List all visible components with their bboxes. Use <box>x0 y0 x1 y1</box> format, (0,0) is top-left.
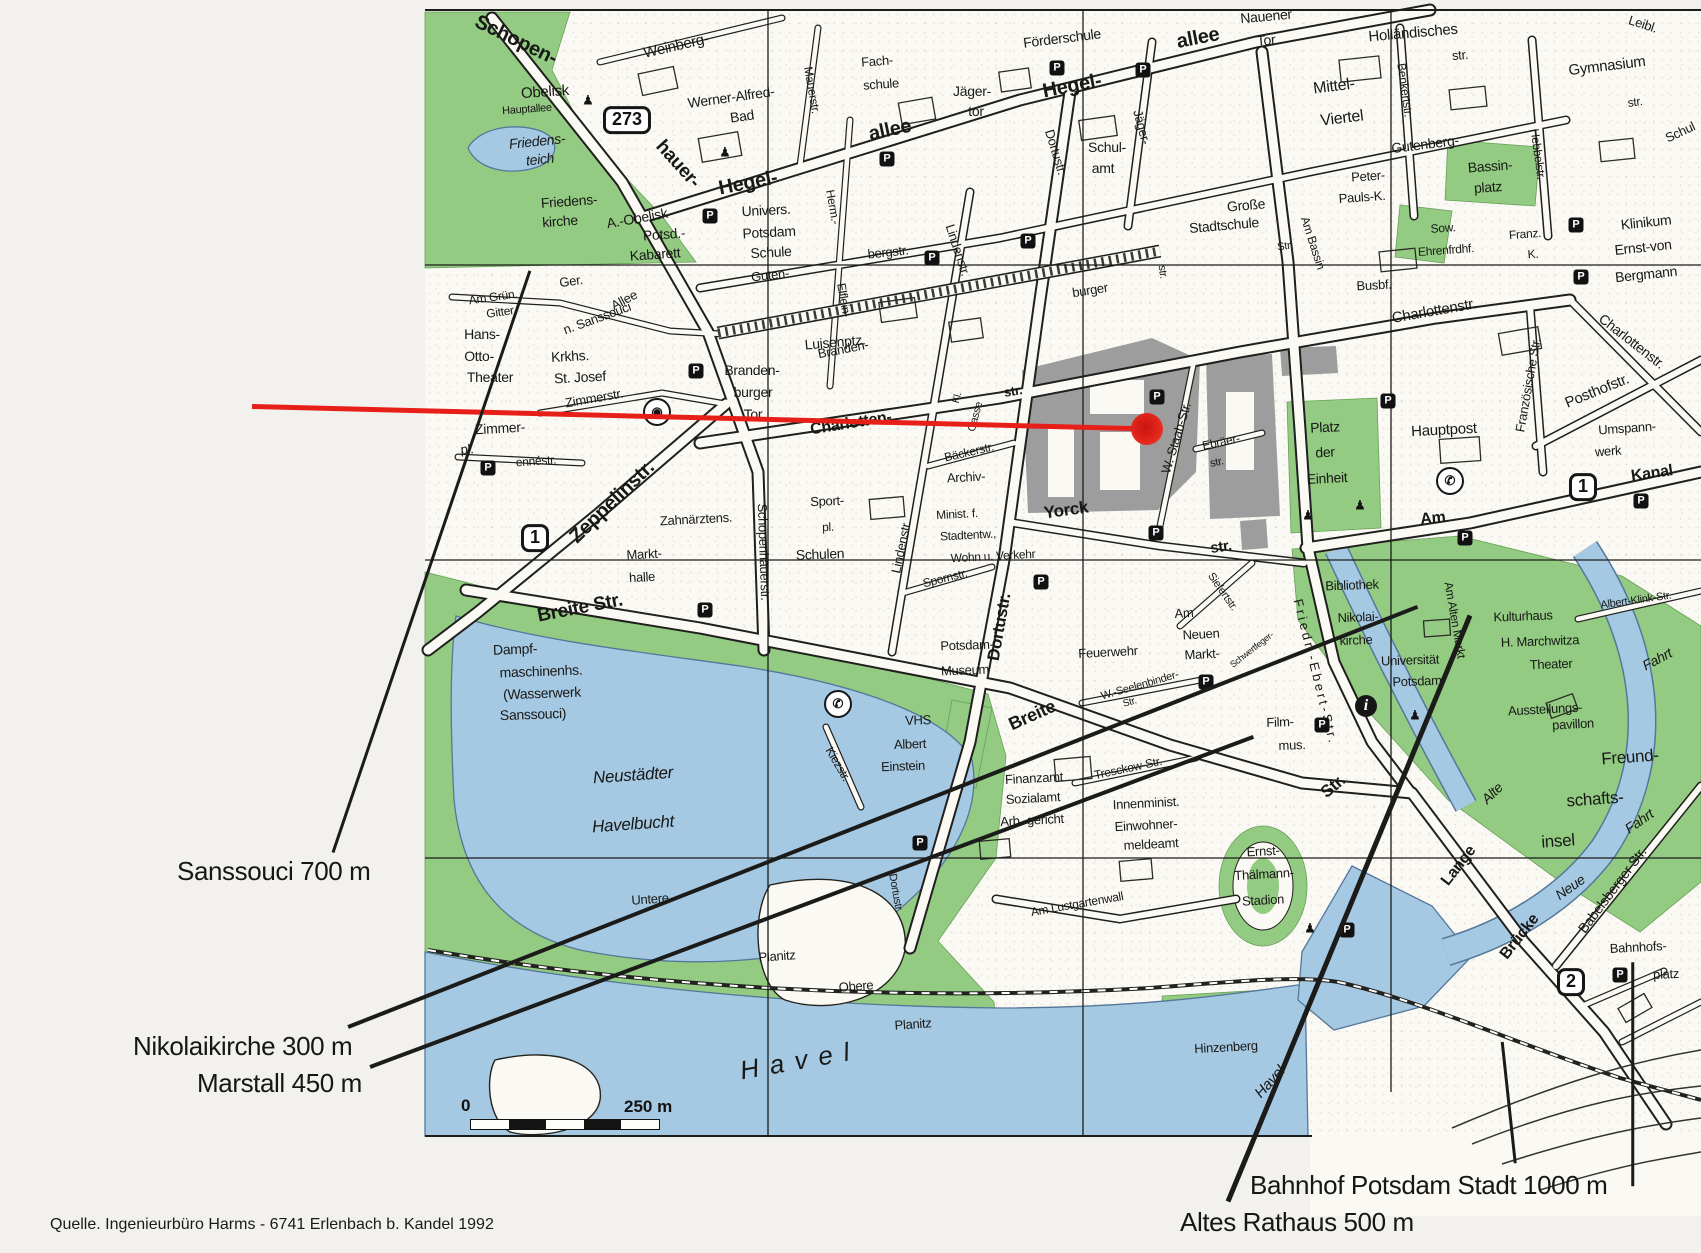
map-label: Feuerwehr <box>1078 644 1138 660</box>
map-label: Archiv- <box>947 470 986 485</box>
map-label: Pauls-K. <box>1338 189 1386 205</box>
map-label: schafts- <box>1566 789 1624 810</box>
poi-circle-icon: ✆ <box>1436 467 1464 495</box>
parking-icon: P <box>1458 531 1473 546</box>
marker-red-dot <box>1131 413 1163 445</box>
map-label: Potsdam <box>1392 674 1442 689</box>
map-label: Guten- <box>750 267 789 284</box>
map-label: Schulen <box>796 546 845 562</box>
map-label: Innenminist. <box>1112 795 1179 811</box>
parking-icon: P <box>1136 63 1151 78</box>
map-label: Dampf- <box>493 641 538 657</box>
map-label: platz <box>1653 967 1680 981</box>
map-label: Fach- <box>861 53 894 68</box>
map-label: Einwohner- <box>1114 817 1177 833</box>
annotation-nikolaikirche: Nikolaikirche 300 m <box>133 1031 352 1062</box>
map-label: Einheit <box>1306 470 1347 486</box>
map-label: Ger. <box>559 273 584 289</box>
monument-icon: ♟ <box>1304 922 1316 935</box>
map-label: Umspann- <box>1598 420 1656 437</box>
map-label: insel <box>1541 831 1576 850</box>
map-label: str. <box>1156 265 1169 280</box>
map-label: str. <box>1209 538 1232 556</box>
route-badge: 273 <box>603 106 651 134</box>
map-label: Museum <box>941 663 989 678</box>
parking-icon: P <box>481 461 496 476</box>
parking-icon: P <box>913 836 928 851</box>
map-label: Friedens- <box>540 192 597 210</box>
parking-icon: P <box>703 209 718 224</box>
map-label: Sozialamt <box>1006 790 1061 806</box>
map-label: meldeamt <box>1123 836 1178 852</box>
map-label: Univers. <box>741 202 791 219</box>
map-label: Busbf. <box>1356 278 1392 293</box>
map-label: Einstein <box>881 759 925 774</box>
map-label: Finanzamt <box>1005 770 1064 786</box>
map-label: Peter- <box>1351 168 1385 183</box>
scale-distance-label: 250 m <box>624 1097 672 1117</box>
map-label: Ehrenfrdhf. <box>1418 242 1475 258</box>
map-label: str. <box>1003 383 1023 399</box>
monument-icon: ♟ <box>1354 499 1366 512</box>
map-label: teich <box>525 151 554 168</box>
map-label: str. <box>1451 48 1468 62</box>
map-label: Film- <box>1266 715 1294 729</box>
pointer-line <box>1632 962 1635 1186</box>
map-stage: Schopen-Weinberg-ObeliskHauptalleeFriede… <box>0 0 1701 1253</box>
map-label: Am <box>1420 510 1446 528</box>
map-label: der <box>1315 445 1335 460</box>
map-label: burger <box>734 385 773 399</box>
map-label: Schule <box>750 244 792 260</box>
map-label: Ernst- <box>1246 844 1280 859</box>
map-label: Obelisk <box>521 83 570 101</box>
map-label: Jäger- <box>953 84 991 98</box>
map-label: Krkhs. <box>551 348 590 364</box>
route-badge: 1 <box>1569 473 1597 501</box>
map-label: Kabarett <box>629 245 680 262</box>
map-label: str. <box>1627 95 1643 109</box>
map-label: Planitz <box>758 948 796 964</box>
scale-zero-label: 0 <box>461 1096 470 1116</box>
map-label: Potsdam- <box>940 638 994 653</box>
map-label: Schopenhauerstr. <box>756 503 772 601</box>
parking-icon: P <box>1149 526 1164 541</box>
map-label: werk <box>1594 444 1621 459</box>
map-label: ennéstr. <box>515 454 556 469</box>
map-label: VHS <box>905 713 931 727</box>
map-label: Bassin- <box>1467 157 1512 174</box>
parking-icon: P <box>1050 61 1065 76</box>
parking-icon: P <box>1150 390 1165 405</box>
map-label: maschinenhs. <box>499 663 582 680</box>
map-label: kirche <box>542 213 578 229</box>
map-label: Otto- <box>464 349 494 363</box>
map-label: Str. <box>1277 240 1294 253</box>
parking-icon: P <box>1021 234 1036 249</box>
map-label: Freund- <box>1601 747 1659 768</box>
annotation-marstall: Marstall 450 m <box>197 1068 362 1099</box>
route-badge: 1 <box>521 524 549 552</box>
map-label: (Wasserwerk <box>503 685 581 702</box>
map-label: St. Josef <box>554 369 606 386</box>
map-label: Minist. f. <box>936 507 978 521</box>
map-label: Albert <box>894 737 927 751</box>
map-label: Markt- <box>626 547 662 562</box>
parking-icon: P <box>1613 968 1628 983</box>
map-label: pl. <box>822 521 834 533</box>
map-label: Sanssouci) <box>500 706 567 722</box>
parking-icon: P <box>925 251 940 266</box>
map-label: Franz. <box>1509 227 1542 241</box>
map-label: Bibliothek <box>1325 578 1379 593</box>
map-label: pavillon <box>1552 716 1594 731</box>
parking-icon: P <box>880 152 895 167</box>
map-label: Tor <box>1256 32 1276 48</box>
monument-icon: ♟ <box>719 146 731 159</box>
map-label: Neuen <box>1182 627 1219 642</box>
map-label: schule <box>863 76 900 91</box>
map-label: tor <box>968 104 983 118</box>
map-label: Stadion <box>1242 892 1285 907</box>
map-label: Am <box>1174 606 1194 620</box>
map-label: Planitz <box>894 1016 932 1032</box>
map-label: H. Marchwitza <box>1501 633 1580 649</box>
source-credit: Quelle. Ingenieurbüro Harms - 6741 Erlen… <box>50 1216 494 1234</box>
annotation-altes-rathaus: Altes Rathaus 500 m <box>1180 1207 1414 1238</box>
map-label: Hinzenberg <box>1194 1039 1258 1055</box>
map-label: Potsd.- <box>642 226 685 243</box>
parking-icon: P <box>689 364 704 379</box>
map-label: Zimmer- <box>475 420 526 437</box>
map-label: halle <box>629 570 656 584</box>
parking-icon: P <box>1574 270 1589 285</box>
route-badge: 2 <box>1557 968 1585 996</box>
poi-circle-icon: ✆ <box>824 690 852 718</box>
map-label: K. <box>1527 248 1539 261</box>
monument-icon: ♟ <box>1409 709 1421 722</box>
map-label: Hans- <box>464 327 500 341</box>
annotation-sanssouci: Sanssouci 700 m <box>177 856 370 887</box>
annotation-bahnhof: Bahnhof Potsdam Stadt 1000 m <box>1250 1170 1607 1201</box>
map-label: Zahnärztens. <box>660 511 733 528</box>
parking-icon: P <box>698 603 713 618</box>
map-label: mus. <box>1278 738 1305 752</box>
map-label: Schul- <box>1088 140 1126 154</box>
map-label: Gitter <box>486 304 515 320</box>
map-label: Hauptpost <box>1411 421 1477 439</box>
map-label: Universität <box>1381 652 1440 667</box>
map-label: platz <box>1474 179 1503 195</box>
parking-icon: P <box>1569 218 1584 233</box>
poi-circle-icon: ◉ <box>643 398 671 426</box>
map-label: Obere <box>838 978 873 993</box>
monument-icon: ♟ <box>1302 509 1314 522</box>
parking-icon: P <box>1634 494 1649 509</box>
map-label: Bad <box>729 107 755 124</box>
parking-icon: P <box>1381 394 1396 409</box>
map-label: Theater <box>1529 657 1572 671</box>
map-label: Bahnhofs- <box>1609 939 1666 955</box>
map-label: amt <box>1092 161 1114 175</box>
map-label: Kulturhaus <box>1493 608 1553 623</box>
map-label: Sow. <box>1430 221 1456 235</box>
scanned-city-map-page: { "map": { "colors": { "page": "#f2f1ed"… <box>0 0 1701 1253</box>
map-label: Sport- <box>810 494 844 508</box>
map-label: Große <box>1226 196 1265 213</box>
scale-bar <box>470 1119 660 1130</box>
map-label: Ausstellungs- <box>1508 701 1583 718</box>
monument-icon: ♟ <box>582 94 594 107</box>
parking-icon: P <box>1034 575 1049 590</box>
map-label: Branden- <box>724 363 779 377</box>
map-label: Stadtentw., <box>940 528 997 543</box>
map-label: Platz <box>1310 419 1340 435</box>
parking-icon: P <box>1315 718 1330 733</box>
map-label: Markt- <box>1184 647 1220 662</box>
map-label: Thälmann- <box>1234 866 1294 882</box>
info-icon: i <box>1355 695 1377 717</box>
map-label: Potsdam <box>742 224 796 241</box>
